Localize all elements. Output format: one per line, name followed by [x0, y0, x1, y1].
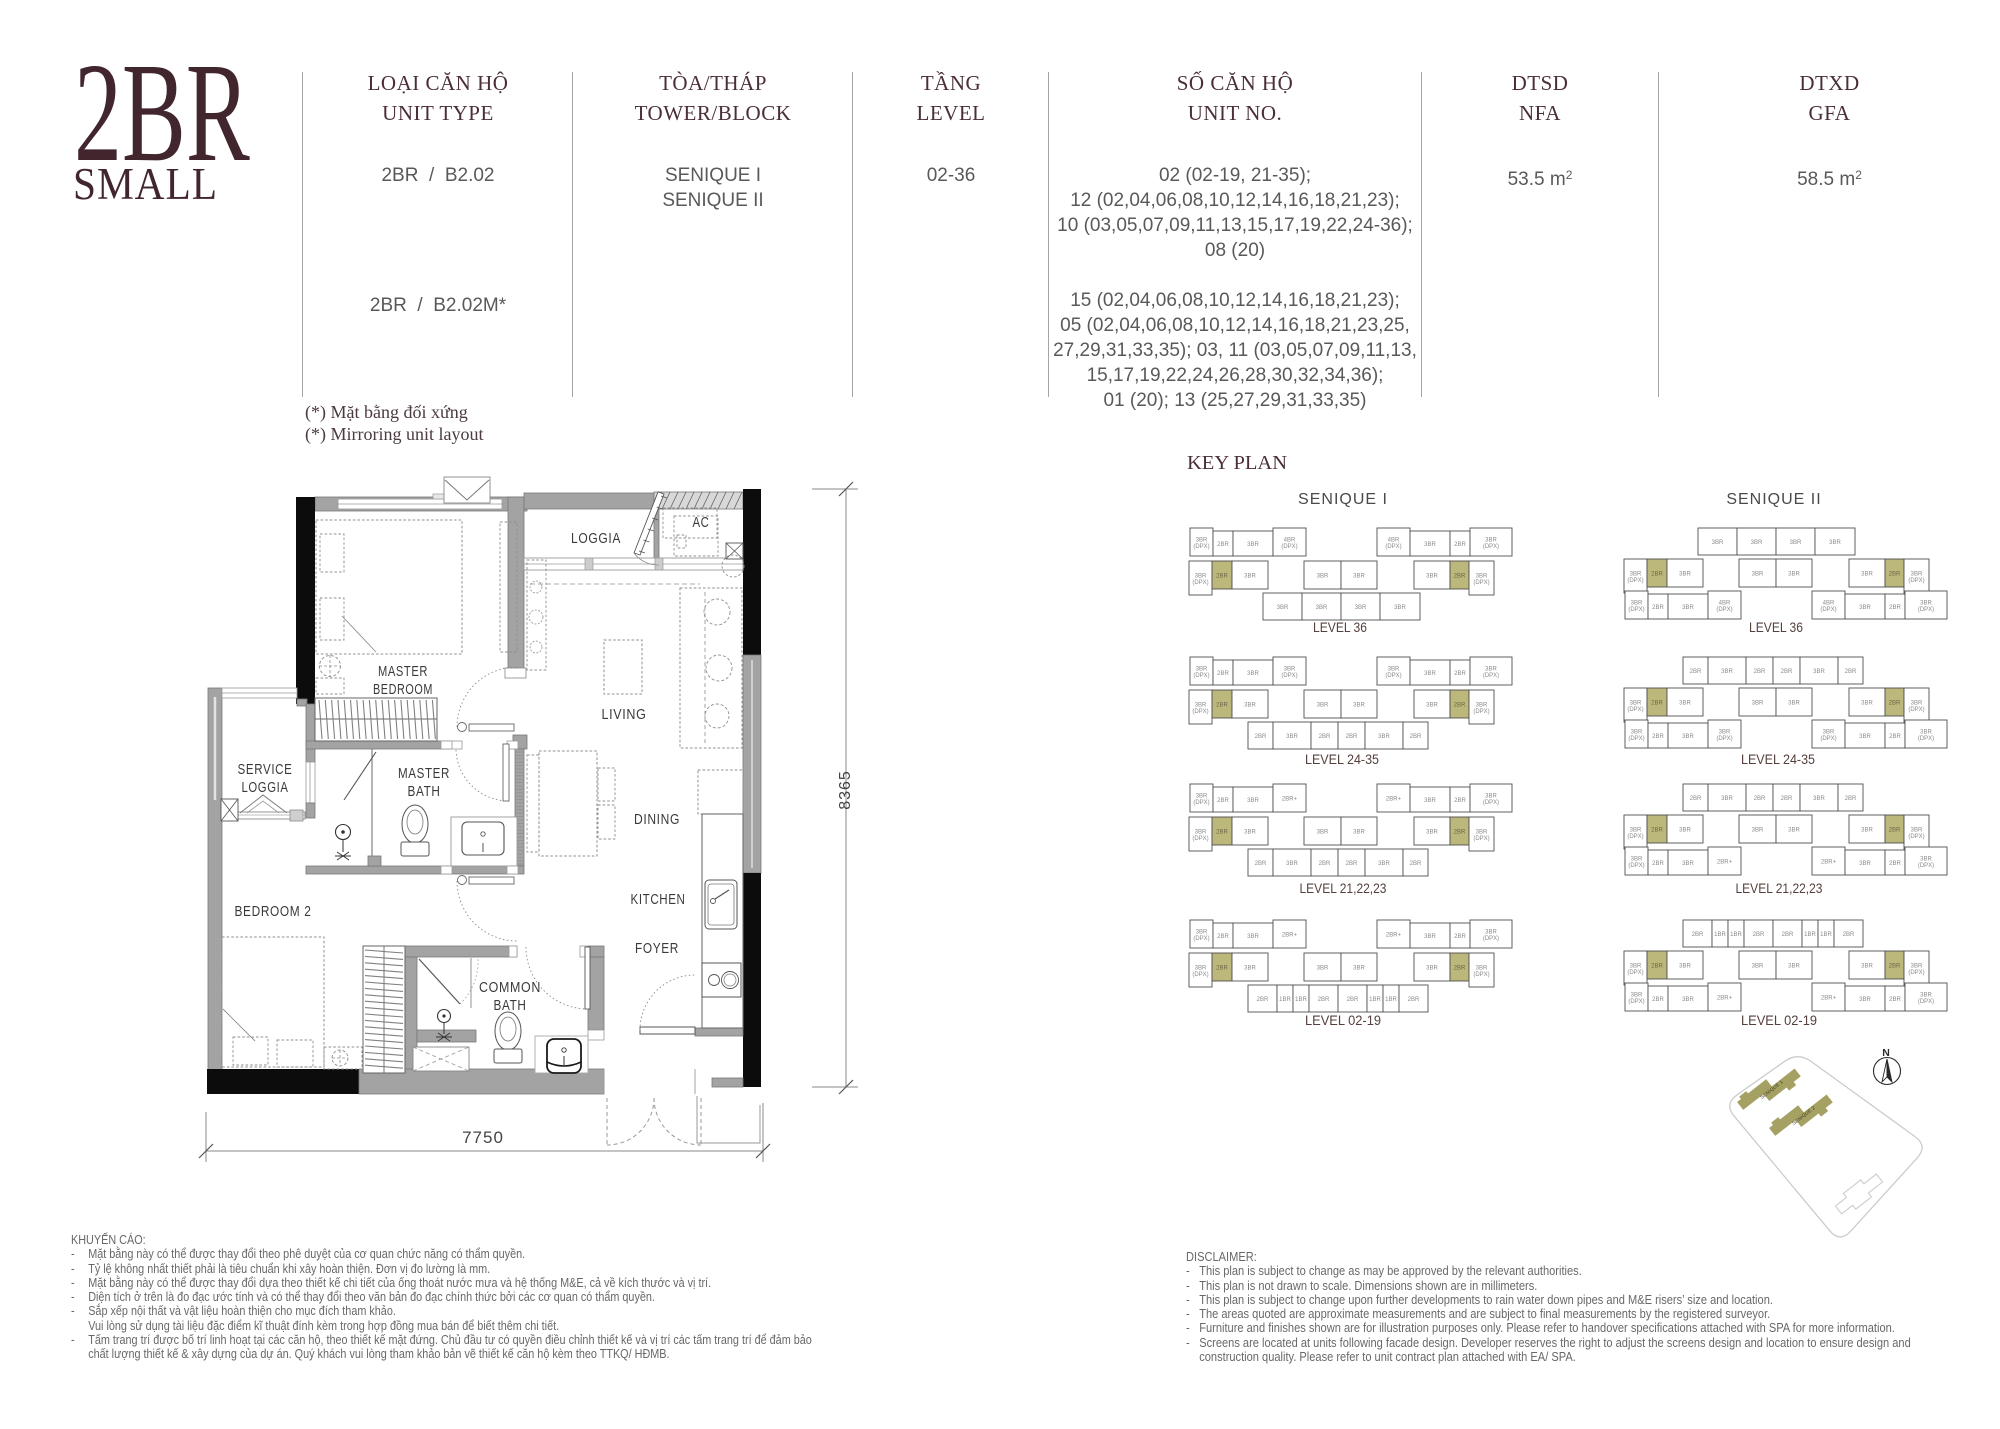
svg-text:3BR: 3BR	[1679, 828, 1691, 834]
svg-text:(DPX): (DPX)	[1193, 544, 1209, 550]
svg-text:2BR: 2BR	[1845, 796, 1857, 802]
svg-text:3BR: 3BR	[1631, 993, 1643, 999]
svg-text:3BR: 3BR	[1911, 964, 1923, 970]
svg-text:3BR: 3BR	[1682, 605, 1694, 611]
svg-text:4BR: 4BR	[1388, 538, 1400, 544]
svg-text:3BR: 3BR	[1355, 605, 1367, 611]
svg-text:2BR: 2BR	[1781, 669, 1793, 675]
svg-text:1BR: 1BR	[1804, 932, 1816, 938]
svg-text:(DPX): (DPX)	[1820, 607, 1836, 613]
svg-text:(DPX): (DPX)	[1918, 863, 1934, 869]
svg-text:SENIQUE I: SENIQUE I	[1298, 491, 1388, 508]
svg-text:2BR: 2BR	[1255, 861, 1267, 867]
svg-text:3BR: 3BR	[1317, 966, 1329, 972]
svg-text:AC: AC	[693, 514, 710, 531]
svg-text:(DPX): (DPX)	[1192, 580, 1208, 586]
svg-text:(DPX): (DPX)	[1483, 800, 1499, 806]
svg-text:2BR: 2BR	[1454, 703, 1466, 709]
svg-text:3BR: 3BR	[1196, 794, 1208, 800]
svg-text:1BR: 1BR	[1369, 997, 1381, 1003]
svg-text:2BR: 2BR	[1217, 542, 1229, 548]
svg-text:3BR: 3BR	[1752, 572, 1764, 578]
svg-text:3BR: 3BR	[1485, 667, 1497, 673]
svg-text:3BR: 3BR	[1859, 997, 1871, 1003]
svg-text:3BR: 3BR	[1813, 796, 1825, 802]
svg-text:3BR: 3BR	[1861, 701, 1873, 707]
svg-text:2BR: 2BR	[1781, 796, 1793, 802]
svg-text:(DPX): (DPX)	[1473, 836, 1489, 842]
svg-text:2BR: 2BR	[1346, 734, 1358, 740]
svg-text:2BR: 2BR	[1690, 669, 1702, 675]
svg-text:3BR: 3BR	[1476, 703, 1488, 709]
svg-text:3BR: 3BR	[1719, 730, 1731, 736]
svg-text:2BR: 2BR	[1652, 734, 1664, 740]
svg-text:3BR: 3BR	[1485, 794, 1497, 800]
svg-text:2BR: 2BR	[1454, 671, 1466, 677]
svg-text:(DPX): (DPX)	[1908, 578, 1924, 584]
svg-text:(DPX): (DPX)	[1820, 736, 1836, 742]
svg-text:3BR: 3BR	[1859, 734, 1871, 740]
svg-text:3BR: 3BR	[1353, 966, 1365, 972]
svg-text:2BR: 2BR	[1889, 605, 1901, 611]
svg-text:3BR: 3BR	[1284, 667, 1296, 673]
svg-text:3BR: 3BR	[1424, 671, 1436, 677]
svg-text:3BR: 3BR	[1682, 861, 1694, 867]
svg-text:LEVEL 21,22,23: LEVEL 21,22,23	[1736, 881, 1823, 896]
svg-text:(DPX): (DPX)	[1908, 970, 1924, 976]
svg-text:2BR: 2BR	[1410, 861, 1422, 867]
svg-text:2BR: 2BR	[1652, 861, 1664, 867]
svg-text:3BR: 3BR	[1679, 572, 1691, 578]
svg-text:3BR: 3BR	[1247, 934, 1259, 940]
svg-text:3BR: 3BR	[1920, 857, 1932, 863]
svg-text:3BR: 3BR	[1679, 701, 1691, 707]
svg-text:2BR: 2BR	[1651, 701, 1663, 707]
svg-text:SENIQUE II: SENIQUE II	[1726, 491, 1821, 508]
svg-text:3BR: 3BR	[1424, 798, 1436, 804]
svg-text:LOGGIA: LOGGIA	[571, 530, 621, 547]
svg-text:4BR: 4BR	[1823, 601, 1835, 607]
svg-text:2BR: 2BR	[1408, 997, 1420, 1003]
svg-text:3BR: 3BR	[1630, 701, 1642, 707]
svg-text:3BR: 3BR	[1317, 830, 1329, 836]
svg-text:BEDROOM: BEDROOM	[373, 681, 433, 698]
svg-text:3BR: 3BR	[1630, 964, 1642, 970]
svg-text:3BR: 3BR	[1394, 605, 1406, 611]
svg-text:2BR: 2BR	[1454, 966, 1466, 972]
svg-text:3BR: 3BR	[1247, 542, 1259, 548]
svg-text:3BR: 3BR	[1920, 730, 1932, 736]
svg-text:2BR: 2BR	[1889, 964, 1901, 970]
svg-text:KEY PLAN: KEY PLAN	[1187, 452, 1287, 474]
svg-text:2BR: 2BR	[1216, 966, 1228, 972]
svg-text:3BR: 3BR	[1195, 966, 1207, 972]
svg-text:3BR: 3BR	[1813, 669, 1825, 675]
svg-text:3BR: 3BR	[1353, 574, 1365, 580]
svg-text:3BR: 3BR	[1631, 857, 1643, 863]
svg-text:(DPX): (DPX)	[1281, 673, 1297, 679]
svg-text:3BR: 3BR	[1859, 861, 1871, 867]
svg-text:3BR: 3BR	[1679, 964, 1691, 970]
svg-text:(DPX): (DPX)	[1385, 544, 1401, 550]
svg-text:3BR: 3BR	[1196, 538, 1208, 544]
svg-text:2BR: 2BR	[1454, 542, 1466, 548]
svg-text:2BR: 2BR	[1454, 574, 1466, 580]
svg-text:3BR: 3BR	[1682, 734, 1694, 740]
svg-text:2BR: 2BR	[1845, 669, 1857, 675]
svg-text:(DPX): (DPX)	[1193, 800, 1209, 806]
svg-text:3BR: 3BR	[1317, 703, 1329, 709]
svg-text:3BR: 3BR	[1790, 540, 1802, 546]
svg-text:(DPX): (DPX)	[1473, 709, 1489, 715]
svg-text:3BR: 3BR	[1752, 828, 1764, 834]
svg-text:2BR: 2BR	[1889, 701, 1901, 707]
svg-text:LEVEL 24-35: LEVEL 24-35	[1305, 752, 1379, 767]
svg-text:LOGGIA: LOGGIA	[242, 779, 289, 796]
svg-text:2BR+: 2BR+	[1821, 860, 1837, 866]
svg-text:3BR: 3BR	[1682, 997, 1694, 1003]
svg-text:3BR: 3BR	[1630, 828, 1642, 834]
svg-text:3BR: 3BR	[1788, 828, 1800, 834]
svg-text:1BR: 1BR	[1385, 997, 1397, 1003]
svg-text:3BR: 3BR	[1244, 966, 1256, 972]
svg-text:2BR: 2BR	[1690, 796, 1702, 802]
svg-text:(DPX): (DPX)	[1627, 707, 1643, 713]
svg-text:3BR: 3BR	[1721, 669, 1733, 675]
svg-text:3BR: 3BR	[1476, 830, 1488, 836]
svg-text:3BR: 3BR	[1788, 964, 1800, 970]
svg-text:3BR: 3BR	[1388, 667, 1400, 673]
svg-text:3BR: 3BR	[1788, 701, 1800, 707]
svg-text:1BR: 1BR	[1730, 932, 1742, 938]
svg-text:3BR: 3BR	[1476, 574, 1488, 580]
svg-text:3BR: 3BR	[1247, 671, 1259, 677]
svg-text:LEVEL 02-19: LEVEL 02-19	[1741, 1013, 1817, 1028]
svg-text:KITCHEN: KITCHEN	[631, 891, 686, 908]
svg-text:2BR+: 2BR+	[1282, 797, 1298, 803]
svg-text:2BR: 2BR	[1454, 798, 1466, 804]
svg-text:4BR: 4BR	[1719, 601, 1731, 607]
svg-text:3BR: 3BR	[1829, 540, 1841, 546]
svg-text:3BR: 3BR	[1378, 861, 1390, 867]
svg-text:4BR: 4BR	[1284, 538, 1296, 544]
svg-text:2BR+: 2BR+	[1386, 797, 1402, 803]
svg-text:DINING: DINING	[634, 811, 680, 828]
svg-text:2BR: 2BR	[1257, 997, 1269, 1003]
svg-text:3BR: 3BR	[1712, 540, 1724, 546]
svg-text:3BR: 3BR	[1426, 703, 1438, 709]
svg-text:LEVEL 24-35: LEVEL 24-35	[1741, 752, 1815, 767]
svg-text:(DPX): (DPX)	[1483, 936, 1499, 942]
svg-text:(DPX): (DPX)	[1473, 580, 1489, 586]
svg-text:FOYER: FOYER	[635, 940, 679, 957]
svg-text:LEVEL 36: LEVEL 36	[1313, 620, 1367, 635]
svg-text:3BR: 3BR	[1316, 605, 1328, 611]
svg-text:(DPX): (DPX)	[1192, 836, 1208, 842]
svg-text:(DPX): (DPX)	[1193, 936, 1209, 942]
svg-text:3BR: 3BR	[1286, 861, 1298, 867]
svg-text:(DPX): (DPX)	[1483, 673, 1499, 679]
svg-text:2BR: 2BR	[1216, 574, 1228, 580]
svg-text:2BR: 2BR	[1753, 932, 1765, 938]
svg-text:2BR: 2BR	[1692, 932, 1704, 938]
svg-text:3BR: 3BR	[1424, 934, 1436, 940]
svg-text:3BR: 3BR	[1631, 730, 1643, 736]
svg-text:2BR: 2BR	[1754, 669, 1766, 675]
svg-text:3BR: 3BR	[1631, 601, 1643, 607]
svg-text:(DPX): (DPX)	[1193, 673, 1209, 679]
svg-text:2BR: 2BR	[1217, 671, 1229, 677]
svg-text:3BR: 3BR	[1196, 930, 1208, 936]
svg-text:2BR: 2BR	[1889, 828, 1901, 834]
svg-text:3BR: 3BR	[1485, 538, 1497, 544]
svg-text:3BR: 3BR	[1721, 796, 1733, 802]
svg-text:2BR: 2BR	[1889, 572, 1901, 578]
svg-text:3BR: 3BR	[1752, 701, 1764, 707]
svg-text:3BR: 3BR	[1247, 798, 1259, 804]
svg-text:2BR: 2BR	[1843, 932, 1855, 938]
svg-text:2BR+: 2BR+	[1717, 860, 1733, 866]
svg-text:LEVEL 21,22,23: LEVEL 21,22,23	[1300, 881, 1387, 896]
svg-text:2BR+: 2BR+	[1282, 933, 1298, 939]
svg-text:2BR: 2BR	[1346, 861, 1358, 867]
svg-text:2BR: 2BR	[1319, 734, 1331, 740]
svg-text:LEVEL 36: LEVEL 36	[1749, 620, 1803, 635]
svg-text:3BR: 3BR	[1920, 601, 1932, 607]
svg-text:LIVING: LIVING	[602, 706, 647, 723]
svg-text:BATH: BATH	[494, 997, 527, 1014]
svg-text:2BR: 2BR	[1347, 997, 1359, 1003]
svg-text:3BR: 3BR	[1861, 964, 1873, 970]
svg-text:3BR: 3BR	[1244, 703, 1256, 709]
svg-text:(DPX): (DPX)	[1627, 578, 1643, 584]
svg-text:(DPX): (DPX)	[1628, 863, 1644, 869]
svg-text:2BR: 2BR	[1652, 605, 1664, 611]
svg-text:1BR: 1BR	[1279, 997, 1291, 1003]
svg-text:3BR: 3BR	[1861, 828, 1873, 834]
svg-text:(DPX): (DPX)	[1627, 970, 1643, 976]
svg-text:COMMON: COMMON	[479, 979, 541, 996]
svg-text:2BR: 2BR	[1651, 964, 1663, 970]
svg-text:MASTER: MASTER	[378, 663, 428, 680]
svg-text:3BR: 3BR	[1353, 830, 1365, 836]
svg-text:7750: 7750	[462, 1128, 504, 1147]
svg-text:1BR: 1BR	[1820, 932, 1832, 938]
svg-text:3BR: 3BR	[1426, 966, 1438, 972]
svg-text:3BR: 3BR	[1823, 730, 1835, 736]
svg-text:3BR: 3BR	[1277, 605, 1289, 611]
svg-text:(DPX): (DPX)	[1918, 736, 1934, 742]
svg-text:(DPX): (DPX)	[1627, 834, 1643, 840]
svg-text:3BR: 3BR	[1476, 966, 1488, 972]
svg-text:2BR: 2BR	[1216, 830, 1228, 836]
svg-text:2BR+: 2BR+	[1821, 996, 1837, 1002]
svg-text:2BR: 2BR	[1216, 703, 1228, 709]
svg-text:(DPX): (DPX)	[1385, 673, 1401, 679]
svg-text:SERVICE: SERVICE	[238, 761, 293, 778]
svg-text:3BR: 3BR	[1911, 828, 1923, 834]
svg-text:8365: 8365	[837, 770, 854, 810]
svg-text:3BR: 3BR	[1196, 667, 1208, 673]
svg-text:(DPX): (DPX)	[1192, 972, 1208, 978]
svg-text:(DPX): (DPX)	[1473, 972, 1489, 978]
svg-text:2BR: 2BR	[1454, 934, 1466, 940]
svg-text:3BR: 3BR	[1911, 572, 1923, 578]
svg-text:2BR: 2BR	[1889, 861, 1901, 867]
svg-text:3BR: 3BR	[1911, 701, 1923, 707]
svg-text:3BR: 3BR	[1752, 964, 1764, 970]
svg-text:3BR: 3BR	[1244, 830, 1256, 836]
svg-text:3BR: 3BR	[1195, 830, 1207, 836]
svg-text:(DPX): (DPX)	[1908, 707, 1924, 713]
svg-text:3BR: 3BR	[1861, 572, 1873, 578]
svg-text:(DPX): (DPX)	[1483, 544, 1499, 550]
svg-text:(DPX): (DPX)	[1716, 607, 1732, 613]
svg-text:2BR: 2BR	[1410, 734, 1422, 740]
svg-text:(DPX): (DPX)	[1192, 709, 1208, 715]
svg-text:2BR+: 2BR+	[1717, 996, 1733, 1002]
svg-text:2BR: 2BR	[1217, 798, 1229, 804]
svg-text:(DPX): (DPX)	[1628, 607, 1644, 613]
svg-text:(DPX): (DPX)	[1716, 736, 1732, 742]
svg-text:3BR: 3BR	[1195, 703, 1207, 709]
svg-text:(DPX): (DPX)	[1281, 544, 1297, 550]
svg-text:(DPX): (DPX)	[1918, 999, 1934, 1005]
svg-text:2BR+: 2BR+	[1386, 933, 1402, 939]
svg-text:2BR: 2BR	[1651, 828, 1663, 834]
svg-text:(DPX): (DPX)	[1628, 999, 1644, 1005]
svg-text:3BR: 3BR	[1424, 542, 1436, 548]
svg-text:2BR: 2BR	[1319, 861, 1331, 867]
svg-text:(DPX): (DPX)	[1628, 736, 1644, 742]
svg-text:2BR: 2BR	[1754, 796, 1766, 802]
svg-text:1BR: 1BR	[1295, 997, 1307, 1003]
svg-text:BEDROOM 2: BEDROOM 2	[235, 903, 312, 920]
svg-text:3BR: 3BR	[1426, 830, 1438, 836]
svg-text:3BR: 3BR	[1353, 703, 1365, 709]
svg-text:LEVEL 02-19: LEVEL 02-19	[1305, 1013, 1381, 1028]
svg-text:3BR: 3BR	[1920, 993, 1932, 999]
svg-text:BATH: BATH	[408, 783, 441, 800]
svg-text:3BR: 3BR	[1859, 605, 1871, 611]
svg-text:3BR: 3BR	[1630, 572, 1642, 578]
svg-text:3BR: 3BR	[1426, 574, 1438, 580]
svg-text:2BR: 2BR	[1217, 934, 1229, 940]
svg-text:3BR: 3BR	[1317, 574, 1329, 580]
svg-text:2BR: 2BR	[1782, 932, 1794, 938]
svg-text:(DPX): (DPX)	[1918, 607, 1934, 613]
svg-text:(DPX): (DPX)	[1908, 834, 1924, 840]
svg-text:3BR: 3BR	[1195, 574, 1207, 580]
svg-text:2BR: 2BR	[1889, 734, 1901, 740]
svg-text:2BR: 2BR	[1255, 734, 1267, 740]
svg-text:3BR: 3BR	[1485, 930, 1497, 936]
svg-text:3BR: 3BR	[1788, 572, 1800, 578]
svg-text:2BR: 2BR	[1889, 997, 1901, 1003]
svg-text:3BR: 3BR	[1244, 574, 1256, 580]
svg-text:2BR: 2BR	[1454, 830, 1466, 836]
svg-text:2BR: 2BR	[1651, 572, 1663, 578]
svg-text:MASTER: MASTER	[398, 765, 450, 782]
svg-text:3BR: 3BR	[1751, 540, 1763, 546]
svg-text:3BR: 3BR	[1286, 734, 1298, 740]
svg-text:2BR: 2BR	[1318, 997, 1330, 1003]
svg-text:1BR: 1BR	[1714, 932, 1726, 938]
svg-text:3BR: 3BR	[1378, 734, 1390, 740]
svg-text:2BR: 2BR	[1652, 997, 1664, 1003]
svg-text:N: N	[1882, 1047, 1890, 1059]
